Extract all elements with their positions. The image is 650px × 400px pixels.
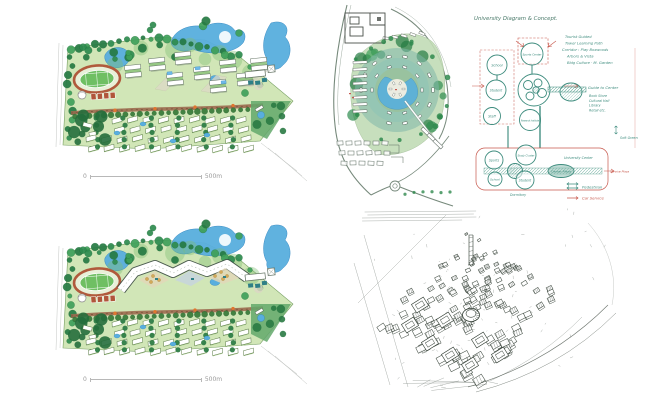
scale-line [90,379,202,380]
scale-label: 500m [205,173,222,180]
svg-text:School: School [491,64,502,68]
svg-text:Library: Library [589,104,601,108]
car-service-label: Car Service [582,196,604,201]
concept-plan-drawing [325,5,470,210]
svg-text:Book Store: Book Store [589,94,607,98]
drawing-board: 0 500m 0 500m University Diagram & Conce… [0,0,650,400]
right-green-mass [251,304,291,342]
road-curves [468,305,616,392]
dome-building [78,294,86,302]
diagram-title: University Diagram & Concept. [474,16,558,22]
svg-text:Bldg Culture · M. Garden: Bldg Culture · M. Garden [567,61,613,65]
svg-text:Cultural Hall: Cultural Hall [589,99,609,103]
scale-label: 500m [205,376,222,383]
dome-building [78,91,86,99]
soft-green-arrow-icon [615,126,618,134]
site-plan-b-drawing [55,218,305,398]
svg-text:Research Institute: Research Institute [521,119,539,123]
svg-text:Center Plaza: Center Plaza [551,170,571,174]
panel-concept-diagram: University Diagram & Concept. Tourist Gu… [468,8,650,208]
scale-bar-a: 0 500m [83,173,222,180]
scale-line [90,176,202,177]
scale-zero: 0 [83,173,87,180]
svg-text:Soft Green: Soft Green [620,136,638,140]
svg-text:Staff: Staff [488,115,496,119]
svg-text:Service Plaza: Service Plaza [610,170,629,174]
panel-site-plan-a: 0 500m [55,15,305,195]
key-plan [345,13,385,43]
ring-building [463,309,480,322]
pedestrian-label: Pedestrian [582,185,603,190]
diagram-legend: Pedestrian Car Service [567,183,604,201]
right-green-mass [251,101,291,139]
scale-zero: 0 [83,376,87,383]
pedestrian-arrow-icon [567,187,578,190]
svg-text:Corridor : Play Boxwoods: Corridor : Play Boxwoods [562,48,608,52]
pedestrian-arrow-icon [567,183,578,186]
svg-text:Student: Student [519,179,532,183]
svg-text:Tourist Guided: Tourist Guided [565,35,592,39]
site-plan-a-drawing [55,15,305,195]
svg-text:Arbors & Vista: Arbors & Vista [566,55,594,59]
svg-text:Guide to Center: Guide to Center [588,85,619,90]
svg-text:Tower Learning Path: Tower Learning Path [565,42,603,46]
svg-text:University Center: University Center [564,156,593,160]
svg-text:Dormitory: Dormitory [510,193,526,197]
aerial-perspective-sketch [350,205,640,395]
svg-text:School: School [490,178,500,182]
svg-text:Retail etc.: Retail etc. [589,108,606,112]
svg-text:Student: Student [490,89,503,93]
guide-notes: Guide to Center Book Store Cultural Hall… [588,85,638,140]
panel-perspective-sketch [350,205,640,395]
car-service-arrow-icon [567,197,578,200]
scale-bar-b: 0 500m [83,376,222,383]
panel-site-plan-b: 0 500m [55,218,305,398]
red-arrow [472,84,484,88]
svg-text:Sports Center: Sports Center [523,53,543,57]
panel-concept-plan [325,5,470,210]
red-arrow [516,41,524,47]
roundabout [390,181,400,191]
svg-text:Study Cluster: Study Cluster [518,154,536,158]
svg-text:Sports: Sports [489,159,500,163]
concept-diagram-drawing: University Diagram & Concept. Tourist Gu… [468,8,650,208]
red-arrow [548,41,556,47]
diagram-notes: Tourist Guided Tower Learning Path Corri… [562,35,613,65]
tower [468,235,474,265]
